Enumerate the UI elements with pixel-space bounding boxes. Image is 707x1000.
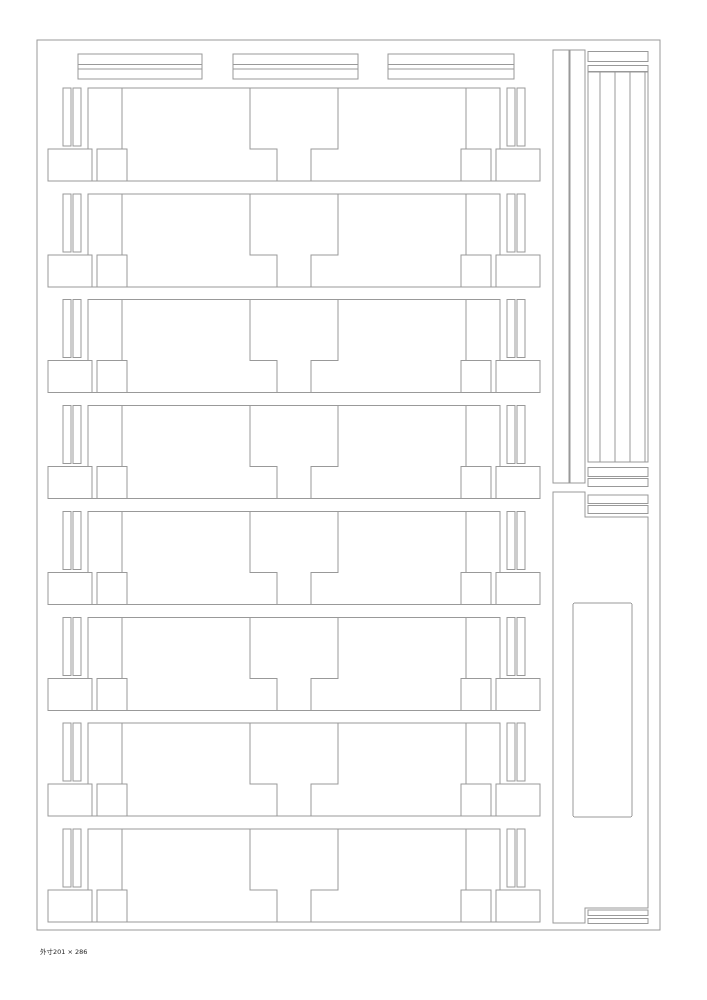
thin-strip-part — [517, 88, 525, 146]
top-bar-outline — [78, 54, 202, 79]
leg-step-edge — [122, 88, 127, 181]
foot-part — [496, 467, 540, 499]
leg-step-edge — [311, 723, 338, 816]
thin-strip-part — [63, 723, 71, 781]
cap-bar-part — [588, 52, 648, 62]
thin-strip-part — [73, 194, 81, 252]
nested-parts-row — [48, 88, 540, 181]
foot-part — [48, 467, 92, 499]
comb-bar-part — [88, 300, 500, 361]
nested-parts-row — [48, 617, 540, 710]
thin-strip-part — [63, 829, 71, 887]
leg-step-edge — [250, 723, 277, 816]
thin-strip-part — [73, 511, 81, 569]
foot-part — [97, 361, 127, 393]
leg-step-edge — [311, 829, 338, 922]
nested-parts-row — [48, 194, 540, 287]
nested-parts-row — [48, 829, 540, 922]
strip-group-outline — [588, 72, 648, 462]
foot-part — [48, 255, 92, 287]
leg-step-edge — [122, 829, 127, 922]
thin-strip-part — [507, 511, 515, 569]
top-bar-part — [233, 54, 358, 79]
leg-step-edge — [461, 88, 466, 181]
leg-step-edge — [250, 406, 277, 499]
leg-step-edge — [311, 406, 338, 499]
thin-strip-part — [63, 88, 71, 146]
thin-strip-part — [73, 617, 81, 675]
thin-strip-part — [73, 406, 81, 464]
thin-strip-part — [73, 88, 81, 146]
top-bar-outline — [233, 54, 358, 79]
leg-step-edge — [311, 194, 338, 287]
foot-part — [461, 784, 491, 816]
leg-step-edge — [250, 617, 277, 710]
foot-part — [461, 678, 491, 710]
technical-drawing-canvas — [0, 0, 707, 1000]
foot-part — [48, 149, 92, 181]
leg-step-edge — [461, 300, 466, 393]
leg-step-edge — [122, 617, 127, 710]
leg-step-edge — [311, 88, 338, 181]
foot-part — [496, 255, 540, 287]
foot-part — [97, 255, 127, 287]
leg-step-edge — [250, 194, 277, 287]
leg-step-edge — [311, 300, 338, 393]
leg-step-edge — [122, 406, 127, 499]
foot-part — [496, 890, 540, 922]
foot-part — [48, 784, 92, 816]
thin-strip-part — [73, 723, 81, 781]
thin-strip-part — [517, 723, 525, 781]
thin-strip-part — [507, 406, 515, 464]
foot-part — [48, 890, 92, 922]
thin-strip-part — [73, 300, 81, 358]
thin-strip-part — [517, 194, 525, 252]
mid-bar-part — [588, 495, 648, 503]
comb-bar-part — [88, 88, 500, 149]
nested-parts-row — [48, 511, 540, 604]
mid-bar-part — [588, 467, 648, 476]
foot-part — [461, 890, 491, 922]
mid-bar-part — [588, 478, 648, 486]
cap-bar-part — [588, 66, 648, 72]
mid-bar-part — [588, 505, 648, 513]
thin-strip-part — [517, 300, 525, 358]
thin-strip-part — [63, 617, 71, 675]
leg-step-edge — [122, 723, 127, 816]
right-column — [553, 50, 648, 924]
large-panel-part — [553, 492, 648, 923]
thin-strip-part — [73, 829, 81, 887]
thin-strip-part — [507, 617, 515, 675]
comb-bar-part — [88, 406, 500, 467]
foot-part — [496, 149, 540, 181]
foot-part — [48, 678, 92, 710]
leg-step-edge — [122, 511, 127, 604]
nested-parts-row — [48, 300, 540, 393]
nested-parts-row — [48, 406, 540, 499]
thin-strip-part — [517, 617, 525, 675]
top-bar-part — [78, 54, 202, 79]
top-bar-outline — [388, 54, 514, 79]
mid-bar-part — [588, 910, 648, 916]
foot-part — [461, 149, 491, 181]
comb-bar-part — [88, 511, 500, 572]
thin-strip-part — [507, 194, 515, 252]
drawing-page: 外寸201 × 286 — [0, 0, 707, 1000]
thin-strip-part — [517, 406, 525, 464]
foot-part — [48, 572, 92, 604]
nested-parts-row — [48, 723, 540, 816]
thin-strip-part — [63, 194, 71, 252]
foot-part — [496, 678, 540, 710]
foot-part — [461, 467, 491, 499]
leg-step-edge — [311, 617, 338, 710]
thin-strip-part — [63, 300, 71, 358]
leg-step-edge — [311, 511, 338, 604]
foot-part — [48, 361, 92, 393]
leg-step-edge — [461, 194, 466, 287]
tall-strip-part — [553, 50, 569, 483]
leg-step-edge — [461, 511, 466, 604]
comb-bar-part — [88, 617, 500, 678]
mid-bar-part — [588, 918, 648, 923]
thin-strip-part — [63, 511, 71, 569]
thin-strip-part — [507, 300, 515, 358]
comb-bar-part — [88, 194, 500, 255]
foot-part — [97, 890, 127, 922]
leg-step-edge — [122, 300, 127, 393]
tall-strip-part — [570, 50, 585, 483]
leg-step-edge — [461, 723, 466, 816]
leg-step-edge — [250, 829, 277, 922]
leg-step-edge — [122, 194, 127, 287]
leg-step-edge — [250, 88, 277, 181]
foot-part — [97, 572, 127, 604]
thin-strip-part — [63, 406, 71, 464]
thin-strip-part — [517, 511, 525, 569]
thin-strip-part — [507, 88, 515, 146]
thin-strip-part — [507, 723, 515, 781]
comb-bar-part — [88, 829, 500, 890]
foot-part — [496, 572, 540, 604]
leg-step-edge — [461, 406, 466, 499]
leg-step-edge — [461, 829, 466, 922]
leg-step-edge — [250, 511, 277, 604]
foot-part — [97, 149, 127, 181]
foot-part — [461, 361, 491, 393]
thin-strip-part — [517, 829, 525, 887]
panel-inner-cutout — [573, 603, 632, 817]
foot-part — [496, 361, 540, 393]
outer-dimensions-label: 外寸201 × 286 — [40, 947, 87, 957]
leg-step-edge — [250, 300, 277, 393]
top-bar-part — [388, 54, 514, 79]
foot-part — [461, 255, 491, 287]
comb-bar-part — [88, 723, 500, 784]
foot-part — [496, 784, 540, 816]
leg-step-edge — [461, 617, 466, 710]
foot-part — [97, 784, 127, 816]
foot-part — [97, 467, 127, 499]
foot-part — [461, 572, 491, 604]
thin-strip-part — [507, 829, 515, 887]
sheet-border — [37, 40, 660, 930]
foot-part — [97, 678, 127, 710]
